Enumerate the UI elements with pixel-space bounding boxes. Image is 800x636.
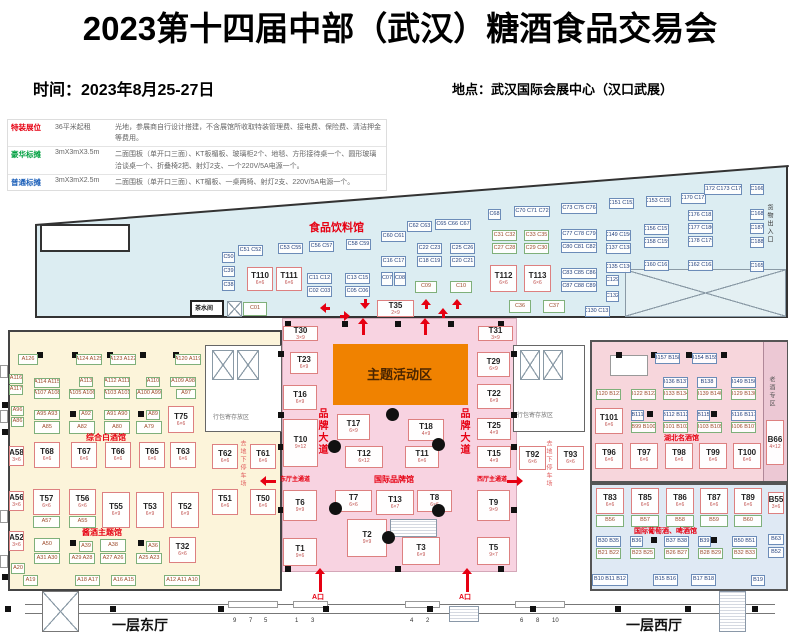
brand-avenue-label: 品牌大道	[316, 408, 326, 456]
brand-avenue-label: 品牌大道	[458, 408, 468, 456]
booth-B136: B136 B137	[663, 377, 688, 388]
booth-T35: T352×9	[377, 300, 414, 317]
booth-T86: T866×6	[666, 488, 694, 514]
pillar	[530, 606, 536, 612]
booth-C08: C08	[394, 272, 406, 286]
door	[405, 601, 440, 608]
booth-A107: A107 A108	[34, 389, 60, 399]
door-number: 9	[233, 618, 236, 624]
wall	[25, 604, 775, 605]
pillar	[651, 537, 657, 543]
booth-T113: T1136×6	[524, 265, 551, 292]
booth-T53: T536×9	[136, 492, 164, 528]
legend-spec: 3mX3mX3.5m	[55, 149, 115, 171]
booth-T101: T1016×6	[595, 408, 623, 434]
booth-C160: C160 C161	[644, 260, 669, 271]
booth-C09: C09	[415, 281, 437, 293]
entrance-canopy	[42, 591, 79, 632]
booth-C22: C22 C23	[417, 243, 442, 254]
booth-C56: C56 C57	[309, 241, 334, 252]
booth-C33: C33 C35	[524, 230, 549, 241]
booth-T96: T966×6	[595, 443, 623, 469]
pillar	[70, 540, 76, 546]
booth-C62: C62 C63	[407, 221, 432, 232]
pillar	[342, 321, 348, 327]
booth-C187: C187	[750, 223, 764, 234]
booth-A109: A109 A98	[170, 377, 196, 387]
stairs	[449, 606, 479, 622]
booth-C151: C151 C152	[609, 198, 634, 209]
door-number: 1	[295, 618, 298, 624]
booth-B32: B32 B33	[732, 548, 757, 559]
hall-label-intl-brand: 国际品牌馆	[374, 476, 414, 484]
booth-C132: C132	[606, 291, 619, 302]
booth-A18: A18 A17	[75, 575, 100, 586]
pillar	[110, 606, 116, 612]
pillar	[511, 507, 517, 513]
pillar	[448, 321, 454, 327]
arrow-part	[517, 476, 523, 486]
pillar	[138, 411, 144, 417]
pillar	[278, 412, 284, 418]
booth-B66: B664×12	[766, 420, 784, 465]
legend-type: 豪华标摊	[11, 149, 55, 171]
booth-C58: C58 C59	[346, 239, 371, 250]
escalator	[390, 519, 437, 537]
booth-C83: C83 C85 C86	[561, 268, 597, 279]
wall	[786, 167, 788, 318]
door-number: 6	[520, 618, 523, 624]
parking-label: 去地下停车场	[545, 440, 551, 488]
booth-B57: B57	[631, 515, 659, 527]
booth-type-legend: 特装展位36平米起租光地，参展商自行设计搭建，不含展馆所收取特装管理费、接电费、…	[7, 119, 387, 191]
booth-C27: C27 C28	[492, 243, 517, 254]
door	[0, 365, 8, 378]
pillar	[70, 411, 76, 417]
pillar	[615, 606, 621, 612]
column	[432, 504, 445, 517]
booth-T112: T1126×6	[490, 265, 517, 292]
booth-T63: T636×6	[170, 442, 196, 468]
booth-B106: B106 B107	[731, 422, 756, 433]
booth-B17: B17 B18	[691, 574, 716, 586]
direction-arrow	[452, 299, 462, 309]
pillar	[721, 352, 727, 358]
booth-B19: B19	[751, 575, 765, 586]
luggage-label: 行包寄存放区	[213, 415, 249, 421]
booth-C60: C60 C61	[381, 231, 406, 242]
door	[228, 601, 278, 608]
pillar	[511, 351, 517, 357]
booth-T17: T176×9	[337, 414, 370, 440]
booth-T5: T59×7	[477, 537, 510, 565]
door-number: 5	[264, 618, 267, 624]
booth-A113: A113	[79, 377, 93, 387]
legend-desc: 光地，参展商自行设计搭建，不含展馆所收取特装管理费、接电费、保险费、清洁押金等费…	[115, 122, 383, 144]
booth-T30: T303×9	[283, 326, 318, 341]
booth-B101: B101 B102	[663, 422, 688, 433]
arrow-part	[425, 305, 428, 309]
legend-spec: 3mX3mX2.5m	[55, 177, 115, 188]
gate-a-label: A口	[459, 594, 471, 601]
booth-C11: C11 C12	[307, 273, 332, 284]
booth-C01: C01	[243, 302, 267, 316]
door-number: 7	[249, 618, 252, 624]
booth-B55: B553×6	[768, 492, 784, 514]
column	[382, 531, 395, 544]
stair-box	[227, 301, 242, 317]
booth-B122: B122 B123	[631, 389, 656, 400]
booth-T55: T556×9	[102, 492, 130, 528]
booth-B28: B28 B29	[698, 548, 723, 559]
pillar	[616, 352, 622, 358]
pillar	[711, 537, 717, 543]
direction-arrow	[420, 318, 430, 335]
booth-T22: T226×9	[477, 384, 511, 409]
booth-A25: A25 A23	[136, 553, 162, 564]
booth-C77: C77 C78 C79	[561, 229, 597, 240]
floor-plan: C50C39C38C51 C52C53 C55C56 C57C58 C59C60…	[0, 0, 800, 636]
column	[329, 502, 342, 515]
booth-C172: C172 C173 C175	[704, 184, 742, 195]
booth-A52: A523×6	[9, 531, 24, 551]
booth-B60: B60	[734, 515, 762, 527]
booth-A38: A38	[100, 539, 126, 552]
direction-arrow	[507, 476, 523, 486]
door	[515, 601, 565, 608]
booth-B157: B157 B158	[655, 353, 680, 364]
hall-notch	[40, 224, 130, 252]
booth-A89: A89	[146, 410, 160, 420]
booth-A91: A91 A90	[104, 410, 130, 420]
booth-C73: C73 C75 C76	[561, 203, 597, 214]
booth-T62: T626×6	[212, 444, 238, 469]
cargo-entrance-label: 货物出入口	[766, 204, 772, 244]
booth-T2: T29×9	[347, 519, 387, 557]
direction-arrow	[358, 318, 368, 335]
column	[432, 438, 445, 451]
booth-C25: C25 C26	[450, 243, 475, 254]
pillar	[5, 606, 11, 612]
booth-T100: T1006×6	[733, 443, 761, 469]
booth-C18: C18 C19	[417, 256, 442, 267]
booth-C16: C16 C17	[381, 256, 406, 267]
booth-A36: A36	[146, 541, 160, 552]
booth-T87: T876×6	[700, 488, 728, 514]
booth-T66: T666×6	[105, 442, 131, 468]
booth-C149: C149 C150	[606, 230, 631, 241]
booth-B103: B103 B105	[697, 422, 722, 433]
booth-A27: A27 A26	[100, 553, 126, 564]
wall	[25, 613, 775, 614]
booth-C168: C168	[750, 209, 764, 220]
booth-A56: A563×6	[9, 491, 24, 511]
old-liquor-label: 老酒专区	[768, 376, 774, 408]
hall-label-theme-activity: 主题活动区	[367, 368, 432, 381]
booth-B111: B111	[631, 410, 644, 421]
booth-A105: A105 A106	[69, 389, 95, 399]
booth-T23: T236×9	[290, 352, 318, 374]
booth-A96: A96	[11, 406, 24, 416]
booth-A117: A117	[9, 385, 23, 395]
booth-T56: T566×6	[69, 489, 96, 515]
booth-C176: C176 C181	[688, 210, 713, 221]
west-aisle-label: 西厅主通道	[477, 477, 507, 483]
booth-T50: T506×6	[250, 489, 276, 515]
booth-C05: C05 C06	[345, 286, 370, 297]
arrow-part	[319, 574, 322, 592]
booth-B112: B112 B113	[663, 410, 688, 421]
pillar	[511, 444, 517, 450]
hall-label-food-beverage: 食品饮料馆	[309, 223, 364, 234]
parking-label: 去地下停车场	[239, 440, 245, 488]
legend-desc: 二面围板（单开口三面）、KT楣板、一桌两椅、射灯2支、220V/5A电源一个。	[115, 177, 383, 188]
booth-T65: T656×6	[139, 442, 165, 468]
booth-T68: T686×6	[34, 442, 60, 468]
pillar	[647, 411, 653, 417]
booth-B59: B59	[700, 515, 728, 527]
booth-B26: B26 B27	[664, 548, 689, 559]
booth-C178: C178 C179	[688, 236, 713, 247]
arrow-part	[360, 303, 370, 309]
booth-B116: B116 B117	[731, 410, 756, 421]
booth-A19: A19	[23, 575, 38, 586]
pillar	[711, 411, 717, 417]
arrow-part	[326, 307, 330, 310]
booth-A39: A39	[79, 541, 93, 552]
booth-B120: B120 B121	[596, 389, 621, 400]
booth-B99: B99 B100	[631, 422, 656, 433]
legend-spec: 36平米起租	[55, 122, 115, 144]
pillar	[427, 606, 433, 612]
booth-B56: B56	[596, 515, 624, 527]
legend-row: 豪华标摊3mX3mX3.5m二面围板（单开口三面）、KT板楣板、玻璃柜2个、地毯…	[8, 147, 386, 174]
booth-A92: A92	[79, 410, 93, 420]
booth-A86: A86	[11, 417, 24, 427]
booth-B37: B37 B38	[664, 536, 689, 547]
booth-C70: C70 C71 C72	[514, 206, 550, 217]
booth-T51: T516×6	[212, 489, 238, 515]
booth-T89: T896×6	[734, 488, 762, 514]
booth-C153: C153 C155	[646, 196, 671, 207]
booth-T99: T996×6	[699, 443, 727, 469]
booth-A103: A103 A101	[104, 389, 130, 399]
booth-A58: A583×6	[9, 446, 24, 466]
elevator	[212, 350, 234, 380]
booth-A112: A112 A111	[104, 377, 130, 387]
pillar	[285, 566, 291, 572]
pillar	[685, 606, 691, 612]
arrow-part	[362, 324, 365, 335]
booth-C162: C162 C163	[688, 260, 713, 271]
legend-row: 普通标摊3mX3mX2.5m二面围板（单开口三面）、KT楣板、一桌两椅、射灯2支…	[8, 175, 386, 190]
pillar	[140, 352, 146, 358]
booth-B23: B23 B25	[630, 548, 655, 559]
hall-label-hubei-liquor: 湖北名酒馆	[664, 435, 699, 442]
pillar	[498, 566, 504, 572]
pillar	[2, 574, 8, 580]
hall-label-baijiu: 综合白酒馆	[86, 434, 126, 442]
booth-A126: A126	[18, 354, 38, 365]
booth-B50: B50 B51	[732, 536, 757, 547]
west-hall-label: 一层西厅	[626, 618, 682, 632]
pillar	[2, 402, 8, 408]
arrow-part	[344, 311, 350, 321]
arrow-part	[442, 314, 445, 318]
booth-T83: T836×6	[596, 488, 624, 514]
legend-row: 特装展位36平米起租光地，参展商自行设计搭建，不含展馆所收取特装管理费、接电费、…	[8, 120, 386, 147]
booth-B39: B39	[698, 536, 711, 547]
pillar	[218, 606, 224, 612]
hall-label-wine-beer: 国际葡萄酒、啤酒馆	[634, 528, 697, 535]
arrow-part	[466, 574, 469, 592]
pillar	[395, 566, 401, 572]
booth-C156: C156 C157	[644, 224, 669, 235]
booth-A100: A100 A99	[136, 389, 162, 399]
booth-C177: C177 C180	[688, 223, 713, 234]
booth-B58: B58	[666, 515, 694, 527]
booth-T13: T136×7	[376, 490, 414, 515]
booth-T31: T313×9	[478, 326, 513, 341]
booth-T10: T109×12	[283, 419, 318, 467]
booth-B36: B36	[630, 536, 643, 547]
booth-T15: T154×9	[477, 446, 511, 468]
booth-T93: T936×6	[557, 446, 584, 470]
booth-A29: A29 A28	[69, 553, 95, 564]
booth-B139: B139 B140	[697, 389, 722, 400]
booth-B149: B149 B150	[731, 377, 756, 388]
elevator	[237, 350, 259, 380]
booth-T67: T676×6	[71, 442, 97, 468]
door-number: 4	[410, 618, 413, 624]
arrow-part	[507, 480, 517, 483]
booth-T85: T856×6	[631, 488, 659, 514]
door-number: 2	[426, 618, 429, 624]
east-aisle-label: 东厅主通道	[280, 477, 310, 483]
registration-box	[610, 355, 648, 376]
booth-T9: T99×9	[477, 490, 510, 521]
door	[0, 510, 8, 523]
booth-C13: C13 C15	[345, 273, 370, 284]
pillar	[138, 540, 144, 546]
booth-B115: B115	[697, 410, 710, 421]
pillar	[278, 351, 284, 357]
booth-T61: T616×6	[250, 444, 276, 469]
booth-C31: C31 C32	[492, 230, 517, 241]
elevator	[520, 350, 540, 380]
booth-B21: B21 B22	[596, 548, 621, 559]
direction-arrow	[360, 299, 370, 309]
booth-T98: T986×6	[665, 443, 693, 469]
stairs	[719, 591, 746, 632]
booth-A55: A55	[69, 516, 96, 528]
booth-C51: C51 C52	[238, 245, 263, 256]
booth-A124: A124 A125	[76, 354, 102, 365]
booth-C07: C07	[381, 272, 393, 286]
direction-arrow	[315, 568, 325, 592]
booth-T97: T976×6	[630, 443, 658, 469]
booth-B133: B133 B134	[663, 389, 688, 400]
booth-C53: C53 C55	[278, 243, 303, 254]
booth-A123: A123 A122	[110, 354, 136, 365]
booth-C158: C158 C159	[644, 237, 669, 248]
booth-C29: C29 C30	[524, 243, 549, 254]
booth-B129: B129 B130	[731, 389, 756, 400]
door-number: 10	[552, 618, 559, 624]
pillar	[752, 606, 758, 612]
booth-T29: T296×9	[477, 352, 510, 377]
booth-T25: T254×9	[477, 418, 511, 440]
booth-A110: A110	[146, 377, 160, 387]
booth-A79: A79	[136, 421, 162, 434]
booth-C36: C36	[509, 300, 531, 313]
booth-A85: A85	[34, 421, 60, 434]
booth-C87: C87 C88 C89	[561, 281, 597, 292]
east-hall-label: 一层东厅	[112, 618, 168, 632]
legend-desc: 二面围板（单开口三面）、KT板楣板、玻璃柜2个、地毯、方形接待桌一个、圆形玻璃洽…	[115, 149, 383, 171]
booth-T57: T576×6	[33, 489, 60, 515]
booth-C65: C65 C66 C67	[435, 219, 471, 230]
booth-B63: B63	[768, 534, 784, 545]
booth-T12: T126×12	[345, 446, 383, 468]
legend-type: 普通标摊	[11, 177, 55, 188]
booth-T6: T69×9	[283, 490, 317, 521]
booth-C166: C166	[750, 184, 764, 195]
booth-A31: A31 A30	[34, 553, 60, 564]
booth-C50: C50	[222, 252, 235, 263]
arrow-part	[456, 305, 459, 309]
pillar	[395, 321, 401, 327]
booth-A97: A97	[176, 389, 196, 399]
booth-A50: A50	[34, 538, 60, 552]
booth-C20: C20 C21	[450, 256, 475, 267]
booth-A57: A57	[33, 516, 60, 528]
elevator	[543, 350, 563, 380]
booth-A12: A12 A11 A10	[164, 575, 200, 586]
booth-A120: A120 A119	[175, 354, 201, 365]
direction-arrow	[462, 568, 472, 592]
direction-arrow	[421, 299, 431, 309]
booth-T1: T19×6	[283, 538, 317, 566]
booth-T111: T1116×6	[276, 267, 302, 291]
arrow-part	[424, 324, 427, 335]
booth-B30: B30 B35	[596, 536, 621, 547]
booth-C80: C80 C81 C82	[561, 242, 597, 253]
door	[0, 555, 8, 568]
booth-C37: C37	[543, 300, 565, 313]
booth-T16: T166×9	[283, 385, 317, 410]
direction-arrow	[260, 476, 276, 486]
legend-type: 特装展位	[11, 122, 55, 144]
booth-T92: T926×6	[519, 446, 546, 470]
booth-A16: A16 A15	[111, 575, 136, 586]
tea-room-label: 茶水间	[195, 306, 213, 312]
direction-arrow	[438, 308, 448, 318]
booth-T110: T1106×6	[247, 267, 273, 291]
booth-C137: C137 C138	[606, 243, 631, 254]
door-number: 3	[311, 618, 314, 624]
booth-C188: C188	[750, 237, 764, 248]
booth-C68: C68	[488, 209, 501, 220]
booth-C135: C135 C136	[606, 262, 631, 273]
booth-B15: B15 B16	[653, 574, 678, 586]
booth-C02: C02 C03	[307, 286, 332, 297]
booth-B10: B10 B11 B12	[592, 574, 628, 586]
booth-C165: C165	[750, 261, 764, 272]
hall-label-jiangjiu: 酱酒主题馆	[82, 529, 122, 537]
wall	[35, 225, 37, 318]
booth-C170: C170 C171	[681, 193, 706, 204]
